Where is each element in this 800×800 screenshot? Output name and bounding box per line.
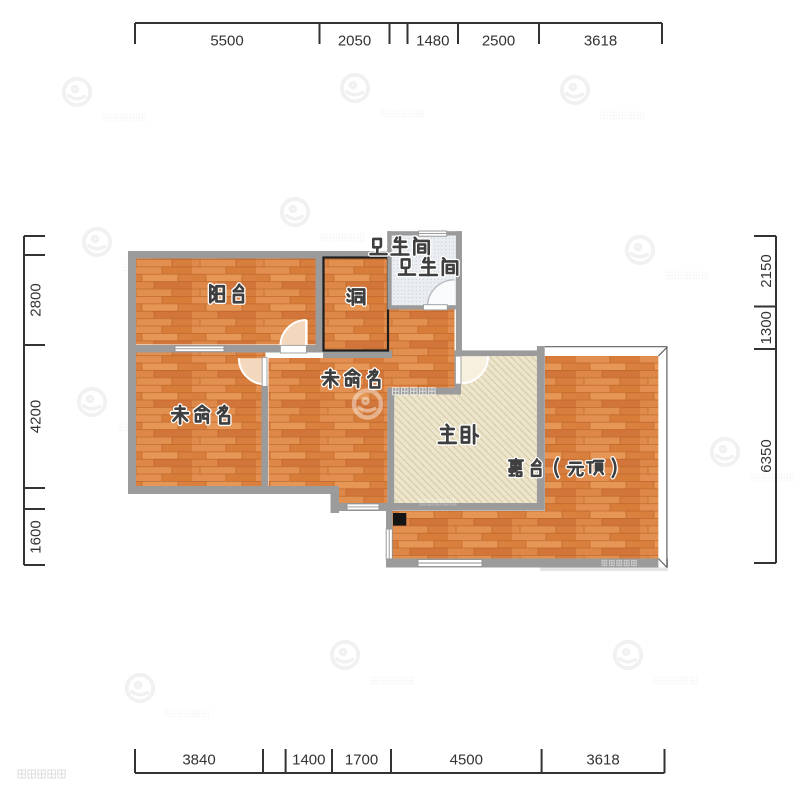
svg-text:4500: 4500 [450,752,483,769]
svg-text:2150: 2150 [758,254,775,287]
svg-text:2800: 2800 [28,283,45,316]
svg-text:1600: 1600 [28,520,45,553]
svg-text:6350: 6350 [758,439,775,472]
svg-text:1400: 1400 [292,752,325,769]
svg-text:2500: 2500 [482,33,515,50]
svg-text:3618: 3618 [584,33,617,50]
svg-text:1480: 1480 [416,33,449,50]
svg-text:4200: 4200 [28,400,45,433]
svg-text:3618: 3618 [586,752,619,769]
svg-text:1700: 1700 [345,752,378,769]
svg-text:3840: 3840 [182,752,215,769]
svg-text:1300: 1300 [758,311,775,344]
svg-text:5500: 5500 [210,33,243,50]
svg-text:2050: 2050 [338,33,371,50]
